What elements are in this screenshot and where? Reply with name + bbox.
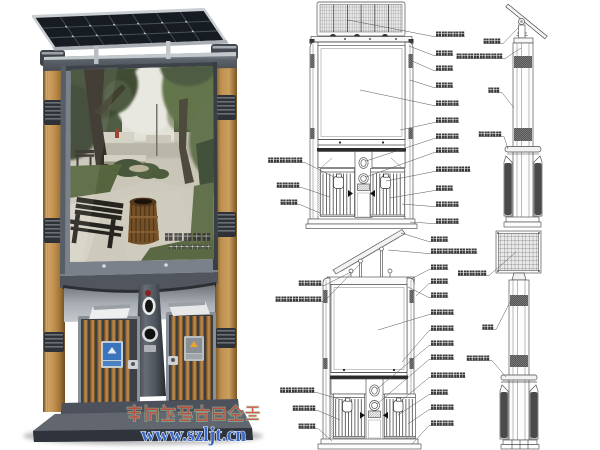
svg-text:www.szljt.cn: www.szljt.cn [141, 425, 246, 446]
